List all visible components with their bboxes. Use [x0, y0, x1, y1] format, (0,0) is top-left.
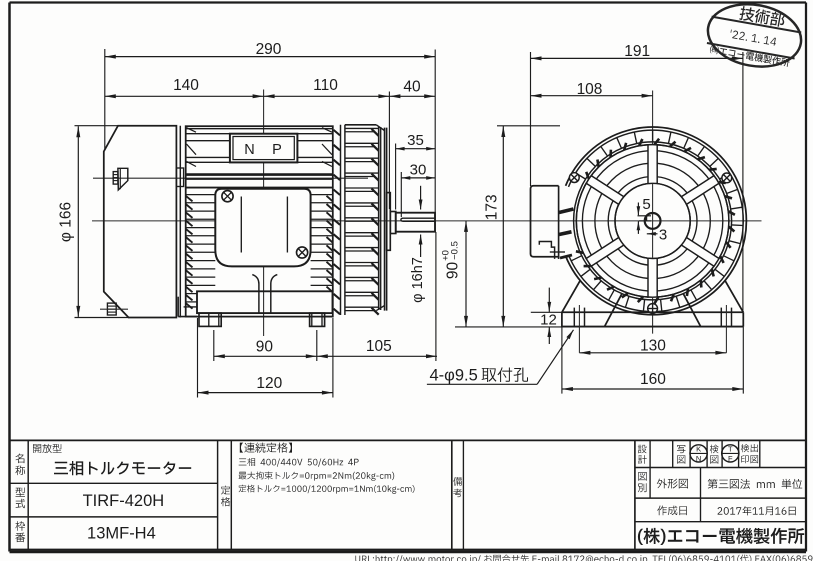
svg-text:4-φ9.5: 4-φ9.5 [430, 367, 478, 385]
svg-text:110: 110 [313, 77, 338, 94]
svg-text:5: 5 [642, 196, 650, 213]
svg-text:φ 166: φ 166 [58, 202, 75, 242]
svg-text:F: F [728, 454, 733, 463]
svg-text:13MF-H4: 13MF-H4 [87, 525, 156, 543]
svg-text:P: P [272, 142, 282, 158]
svg-text:N: N [696, 454, 701, 463]
svg-text:T: T [728, 444, 733, 453]
svg-text:φ 16h7: φ 16h7 [410, 257, 426, 303]
svg-text:90: 90 [445, 262, 462, 280]
svg-text:160: 160 [640, 371, 666, 388]
svg-text:191: 191 [624, 43, 650, 60]
svg-text:105: 105 [366, 338, 392, 355]
svg-text:90: 90 [256, 338, 274, 355]
svg-text:140: 140 [173, 77, 199, 94]
svg-text:290: 290 [256, 41, 282, 58]
svg-text:N: N [244, 142, 254, 158]
svg-text:130: 130 [640, 337, 666, 354]
svg-text:TIRF-420H: TIRF-420H [83, 492, 165, 510]
svg-text:30: 30 [410, 161, 427, 178]
svg-text:35: 35 [407, 132, 424, 149]
svg-text:K: K [696, 444, 701, 453]
svg-text:173: 173 [484, 194, 501, 220]
svg-text:−0.5: −0.5 [449, 241, 460, 260]
svg-text:120: 120 [256, 375, 282, 392]
svg-text:108: 108 [577, 81, 603, 98]
svg-text:12: 12 [540, 311, 557, 328]
svg-text:3: 3 [659, 227, 667, 244]
svg-text:40: 40 [403, 79, 421, 96]
